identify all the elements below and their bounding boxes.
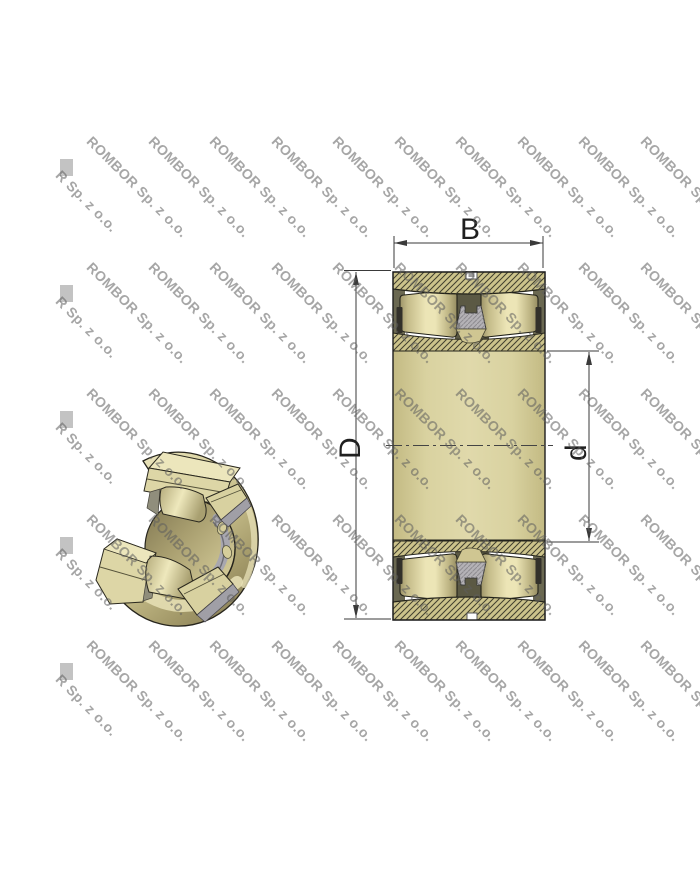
cage-sliver	[147, 489, 160, 515]
arrowhead-right	[530, 240, 543, 246]
arrowhead-top	[353, 272, 359, 285]
bearing-section-view: B D d	[334, 213, 599, 620]
label-d: d	[560, 444, 593, 461]
cage-rail	[536, 307, 542, 333]
roller-bottom-right	[481, 554, 538, 601]
bearing-3d-cutaway-view	[96, 452, 258, 626]
label-B: B	[460, 213, 480, 246]
cage-rail	[397, 307, 403, 333]
label-D: D	[334, 437, 367, 459]
arrowhead-left	[394, 240, 407, 246]
technical-drawing: B D d	[0, 0, 700, 869]
cage-rail	[397, 558, 403, 584]
roller-bottom-left	[400, 554, 457, 601]
roller-top-left	[400, 290, 457, 337]
cage-rail	[536, 558, 542, 584]
lubrication-notch-bottom	[467, 613, 477, 620]
arrowhead-bottom	[586, 528, 592, 541]
roller-top-right	[481, 290, 538, 337]
bearing-catalog-image: B D d ROMBOR Sp. z o.o.ROMBOR Sp. z o.o.…	[0, 0, 700, 869]
arrowhead-top	[586, 352, 592, 365]
arrowhead-bottom	[353, 605, 359, 618]
